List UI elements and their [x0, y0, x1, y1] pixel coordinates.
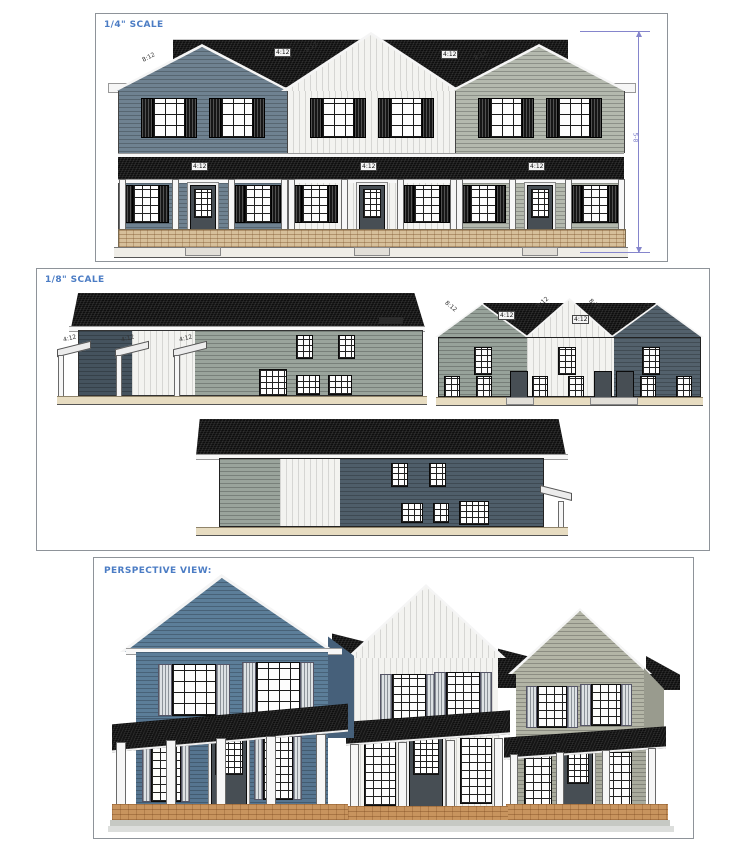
- side-elevation-left: 4:12 4:12 4:12: [57, 293, 427, 405]
- porch-column: [398, 742, 407, 816]
- window: [256, 662, 300, 714]
- shutter: [572, 185, 582, 223]
- window-with-shutters: [209, 98, 265, 138]
- porch-shed-roof: [540, 485, 572, 501]
- rear-door: [510, 371, 528, 399]
- shutter: [254, 736, 263, 800]
- window: [296, 335, 313, 359]
- ridge-vent: [379, 317, 403, 324]
- window: [390, 98, 422, 138]
- window-with-shutters: [141, 98, 197, 138]
- shutter: [328, 185, 338, 223]
- shutter: [159, 185, 169, 223]
- ground-strip: [436, 397, 703, 406]
- shutter: [310, 98, 322, 138]
- dimension-arrow: [636, 31, 642, 37]
- window: [364, 740, 396, 806]
- shutter: [181, 738, 190, 802]
- shutter: [141, 98, 153, 138]
- wall-white-section: [280, 459, 340, 526]
- window: [391, 463, 408, 487]
- window-pair: [296, 375, 320, 395]
- window-with-shutters: [310, 98, 366, 138]
- shutter: [271, 185, 281, 223]
- height-dimension-text: 5-8: [631, 133, 638, 143]
- window: [302, 185, 328, 223]
- window: [558, 347, 576, 375]
- belt-pitch-label: 4:12: [191, 162, 208, 171]
- window: [322, 98, 354, 138]
- party-wall-line: [455, 91, 456, 153]
- shutter: [526, 686, 537, 728]
- rear-elevation: 4:12 4:12 8:12 8:12 8:12 8:12: [438, 291, 701, 406]
- window-with-shutters: [478, 98, 534, 138]
- porch-column: [446, 740, 455, 816]
- porch-post: [558, 501, 564, 529]
- shutter: [621, 684, 632, 726]
- shutter: [185, 98, 197, 138]
- window: [392, 674, 426, 720]
- gable-siding: [512, 611, 648, 674]
- window-with-shutters: [404, 185, 450, 223]
- window-with-shutters: [242, 662, 314, 714]
- window: [642, 347, 660, 375]
- window-with-shutters: [123, 185, 169, 223]
- window: [558, 98, 590, 138]
- window: [172, 664, 216, 716]
- window: [414, 185, 440, 223]
- party-wall-line: [287, 91, 288, 153]
- shutter: [378, 98, 390, 138]
- front-elevation-panel: 1/4" SCALE 4:12 4:12 8:12 8:12 8:12: [95, 13, 668, 262]
- window: [444, 376, 460, 398]
- door-stoop: [185, 247, 221, 256]
- wall-green-section: [220, 459, 280, 526]
- side-elevation-right: [196, 417, 568, 541]
- porch-post: [116, 355, 122, 398]
- window-with-shutters: [158, 664, 230, 716]
- window: [338, 335, 355, 359]
- shutter: [242, 662, 256, 714]
- perspective-panel: PERSPECTIVE VIEW:: [93, 557, 694, 839]
- window-with-shutters: [572, 185, 618, 223]
- shutter: [380, 674, 392, 720]
- belt-pitch-label: 4:12: [528, 162, 545, 171]
- door: [409, 733, 443, 813]
- rear-door: [594, 371, 612, 399]
- drawing-sheet: 1/4" SCALE 4:12 4:12 8:12 8:12 8:12: [0, 0, 737, 844]
- ground-strip: [196, 527, 568, 536]
- shutter: [293, 736, 302, 800]
- shutter: [440, 185, 450, 223]
- window: [446, 672, 480, 718]
- window: [532, 376, 548, 398]
- shutter: [590, 98, 602, 138]
- window-pair: [433, 503, 449, 523]
- eighth-scale-panel: 1/8" SCALE 4:12 4:12 4:12: [36, 268, 710, 551]
- perspective-gable-unit3: [508, 608, 652, 674]
- window-pair: [401, 503, 423, 523]
- gable-pitch-label: 8:12: [141, 51, 156, 63]
- roof-pitch-label: 4:12: [441, 50, 458, 59]
- door-stoop: [354, 247, 390, 256]
- window: [153, 98, 185, 138]
- gable-siding: [125, 578, 331, 652]
- window-with-shutters: [546, 98, 602, 138]
- roof: [71, 293, 425, 328]
- door-glass: [413, 737, 439, 775]
- window-with-shutters: [378, 98, 434, 138]
- dimension-arrow: [636, 247, 642, 253]
- window-with-shutters: [235, 185, 281, 223]
- window-with-shutters: [460, 185, 506, 223]
- rear-door: [616, 371, 634, 399]
- shutter: [496, 185, 506, 223]
- gable-siding: [350, 587, 502, 658]
- shutter: [478, 98, 490, 138]
- window: [474, 347, 492, 375]
- perspective-gable-unit1: [120, 574, 336, 652]
- shutter: [158, 664, 172, 716]
- brick-skirt: [118, 229, 626, 249]
- window: [221, 98, 253, 138]
- door-stoop: [506, 397, 534, 405]
- perspective-gable-unit2: [346, 584, 506, 658]
- door-glass: [363, 189, 381, 218]
- window: [524, 754, 552, 808]
- shutter: [546, 98, 558, 138]
- window: [460, 738, 492, 804]
- shutter: [522, 98, 534, 138]
- shutter: [216, 664, 230, 716]
- shutter: [422, 98, 434, 138]
- ground-strip: [57, 396, 427, 405]
- window: [429, 463, 446, 487]
- shutter: [404, 185, 414, 223]
- window-with-shutters: [580, 684, 632, 726]
- shutter: [434, 672, 446, 718]
- window: [476, 376, 492, 398]
- shutter: [235, 185, 245, 223]
- window: [537, 686, 567, 728]
- window: [133, 185, 159, 223]
- front-elevation-drawing: 4:12 4:12 8:12 8:12 8:12: [118, 26, 624, 256]
- window: [245, 185, 271, 223]
- shutter: [608, 185, 618, 223]
- perspective-drawing: [102, 568, 685, 830]
- scale-label: 1/8" SCALE: [45, 275, 105, 285]
- door-stoop: [590, 397, 638, 405]
- window: [470, 185, 496, 223]
- shutter: [567, 686, 578, 728]
- shutter: [354, 98, 366, 138]
- door-glass: [531, 189, 549, 218]
- porch-pitch-label: 4:12: [62, 333, 77, 343]
- door-stoop: [522, 247, 558, 256]
- door-glass: [567, 753, 589, 784]
- shutter: [580, 684, 591, 726]
- window: [259, 369, 287, 396]
- porch-column: [494, 738, 503, 816]
- window-with-shutters: [292, 185, 338, 223]
- window: [490, 98, 522, 138]
- roof-pitch-label: 4:12: [498, 311, 515, 320]
- window: [582, 185, 608, 223]
- window: [676, 376, 692, 398]
- ground-shadow: [108, 826, 674, 832]
- gable-pitch-label: 8:12: [443, 299, 458, 313]
- roof: [196, 419, 566, 456]
- entry-door-unit2: [406, 730, 446, 816]
- window: [568, 376, 584, 398]
- window-with-shutters: [526, 686, 578, 728]
- belt-pitch-label: 4:12: [360, 162, 377, 171]
- porch-post: [174, 355, 180, 398]
- window: [459, 501, 489, 525]
- wall: [219, 458, 544, 527]
- window: [640, 376, 656, 398]
- window-pair: [328, 375, 352, 395]
- porch-post: [58, 355, 64, 398]
- door-glass: [194, 189, 212, 218]
- shutter: [209, 98, 221, 138]
- shutter: [253, 98, 265, 138]
- window-with-shutters: [254, 736, 302, 800]
- roof-pitch-label: 4:12: [274, 48, 291, 57]
- roof-pitch-label: 4:12: [572, 315, 589, 324]
- window-with-shutters: [380, 674, 438, 720]
- window: [591, 684, 621, 726]
